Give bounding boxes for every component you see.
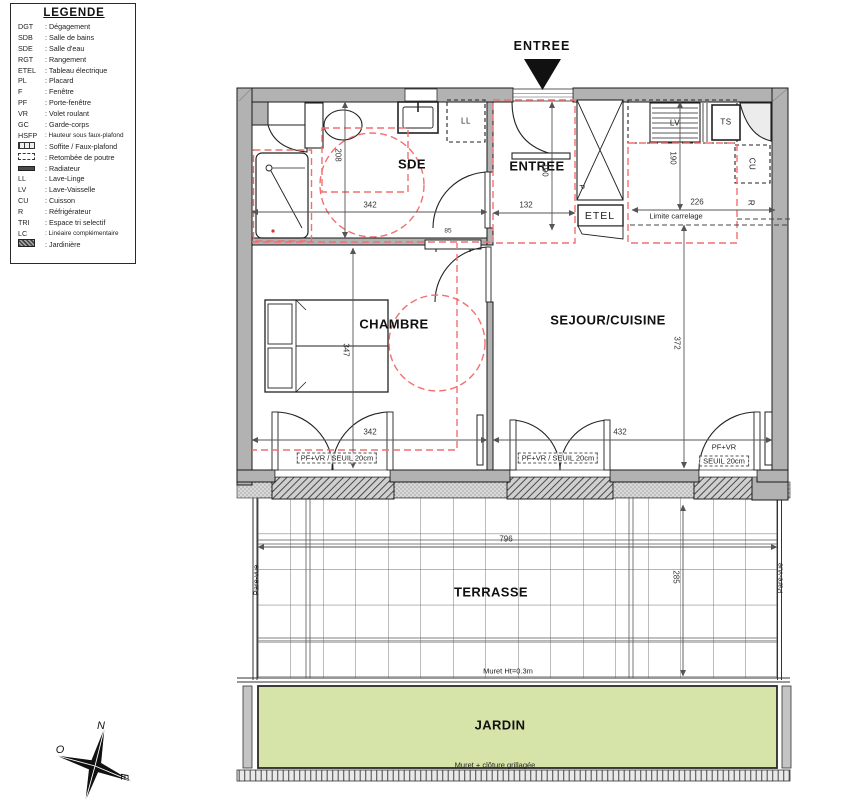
legend-title: LEGENDE bbox=[18, 7, 130, 19]
dishwasher-label: LV bbox=[670, 119, 680, 128]
etel-label: ETEL bbox=[585, 210, 615, 222]
cooktop-label: CU bbox=[748, 158, 757, 171]
dim-kitchen-height: 190 bbox=[669, 151, 678, 164]
legend-item: CU: Cuisson bbox=[18, 196, 130, 207]
entry-arrow-icon bbox=[524, 59, 561, 90]
legend-item: F: Fenêtre bbox=[18, 87, 130, 98]
entry-door-opening bbox=[513, 89, 573, 101]
muret-line bbox=[237, 678, 790, 682]
legend-item: : Jardinière bbox=[18, 240, 130, 251]
soffit-icon bbox=[18, 142, 35, 149]
legend-item: R: Réfrigérateur bbox=[18, 207, 130, 218]
legend-item: SDB: Salle de bains bbox=[18, 33, 130, 44]
legend-item: : Radiateur bbox=[18, 164, 130, 175]
dim-chambre-width: 342 bbox=[363, 428, 376, 437]
pf-vr-seuil-label-chambre: PF+VR / SEUIL 20cm bbox=[297, 453, 377, 464]
legend-item: HSFP: Hauteur sous faux-plafond bbox=[18, 131, 130, 142]
dim-chambre-height: 347 bbox=[342, 343, 351, 356]
dim-entree-width: 132 bbox=[519, 201, 532, 210]
legend-item: GC: Garde-corps bbox=[18, 120, 130, 131]
room-label-sde: SDE bbox=[398, 157, 426, 172]
compass-east-label: E bbox=[118, 773, 130, 780]
pare-vue-label-left: Pare-vue bbox=[252, 565, 261, 595]
radiator-sejour-right bbox=[765, 412, 772, 465]
legend-item: SDE: Salle d'eau bbox=[18, 44, 130, 55]
kitchen-sink bbox=[740, 103, 771, 141]
fence-band bbox=[237, 770, 790, 781]
compass-north-label: N bbox=[97, 720, 105, 732]
legend-item: TRI: Espace tri selectif bbox=[18, 218, 130, 229]
legend-item: LV: Lave-Vaisselle bbox=[18, 185, 130, 196]
seuil-label-right: SEUIL 20cm bbox=[699, 456, 749, 467]
radiator-icon bbox=[18, 166, 35, 171]
cloture-label: Muret + clôture grillagée bbox=[455, 761, 536, 770]
pf-vr-label-right: PF+VR bbox=[712, 443, 736, 452]
bed bbox=[265, 300, 388, 392]
niche bbox=[405, 89, 437, 101]
legend-panel: LEGENDE DGT: Dégagement SDB: Salle de ba… bbox=[10, 3, 136, 264]
room-label-terrasse: TERRASSE bbox=[454, 585, 528, 600]
legend-item: PL: Placard bbox=[18, 76, 130, 87]
dim-terrasse-width: 796 bbox=[499, 535, 512, 544]
dim-sde-height: 208 bbox=[334, 148, 343, 161]
entry-marker-label: ENTREE bbox=[514, 39, 571, 53]
legend-item: : Soffite / Faux-plafond bbox=[18, 142, 130, 153]
legend-item: : Retombée de poutre bbox=[18, 153, 130, 164]
dim-kitchen-width: 226 bbox=[690, 198, 703, 207]
dim-sejour-width: 432 bbox=[613, 428, 626, 437]
compass-star-icon bbox=[58, 730, 131, 799]
legend-item: VR: Volet roulant bbox=[18, 109, 130, 120]
terrace-area bbox=[237, 482, 790, 682]
legend-item: ETEL: Tableau électrique bbox=[18, 66, 130, 77]
washing-machine-label: LL bbox=[461, 117, 471, 126]
legend-item: DGT: Dégagement bbox=[18, 22, 130, 33]
room-label-entree: ENTREE bbox=[509, 159, 564, 174]
dim-sejour-height: 372 bbox=[673, 336, 682, 349]
floor-plan-page: LEGENDE DGT: Dégagement SDB: Salle de ba… bbox=[0, 0, 845, 800]
dim-sde-width: 342 bbox=[363, 201, 376, 210]
compass-west-label: O bbox=[56, 744, 65, 756]
placard-label: P bbox=[578, 184, 585, 189]
limite-carrelage-label: Limite carrelage bbox=[649, 212, 702, 221]
pf-vr-seuil-label-sejour: PF+VR / SEUIL 20cm bbox=[518, 453, 598, 464]
toilet bbox=[305, 103, 362, 148]
room-label-jardin: JARDIN bbox=[475, 718, 526, 733]
muret-label: Muret Ht=0.3m bbox=[483, 667, 533, 676]
accessibility-overlays bbox=[252, 100, 737, 450]
legend-item: LL: Lave-Linge bbox=[18, 174, 130, 185]
room-label-sejour: SEJOUR/CUISINE bbox=[550, 313, 665, 328]
wall-openings bbox=[275, 89, 757, 477]
pare-vue-label-right: Pare-vue bbox=[776, 563, 785, 593]
tri-label: TS bbox=[720, 118, 731, 127]
jardiniere-icon bbox=[18, 239, 35, 247]
dim-radiator: 85 bbox=[444, 228, 451, 235]
corner-washbasin bbox=[268, 125, 307, 152]
legend-item: LC: Linéaire complémentaire bbox=[18, 229, 130, 240]
fridge-label: R bbox=[747, 200, 756, 206]
legend-item: PF: Porte-fenêtre bbox=[18, 98, 130, 109]
beam-icon bbox=[18, 153, 35, 160]
dim-entree-height: 190 bbox=[541, 163, 550, 176]
dim-terrasse-height: 285 bbox=[672, 570, 681, 583]
shower bbox=[256, 153, 308, 238]
room-label-chambre: CHAMBRE bbox=[359, 317, 428, 332]
legend-item: RGT: Rangement bbox=[18, 55, 130, 66]
